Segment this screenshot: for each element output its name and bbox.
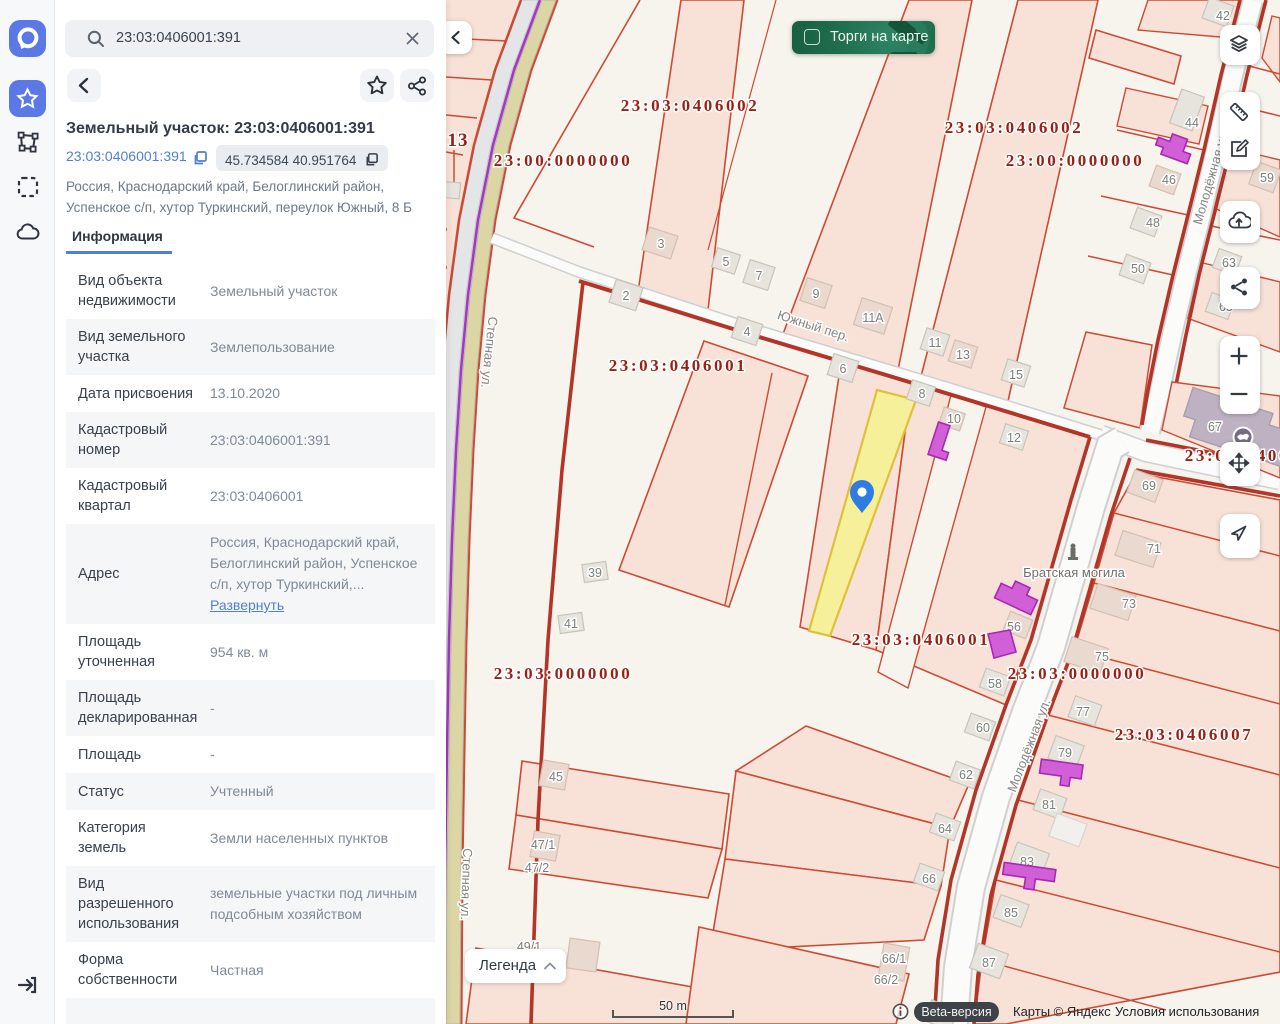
- svg-text:11А: 11А: [862, 311, 884, 325]
- svg-text:Братская могила: Братская могила: [1023, 565, 1126, 580]
- svg-text:60: 60: [976, 721, 990, 735]
- svg-text:44: 44: [1185, 116, 1199, 130]
- svg-text:23:03:0406001: 23:03:0406001: [852, 630, 991, 649]
- svg-text:8: 8: [919, 387, 926, 401]
- svg-text:11: 11: [929, 336, 942, 350]
- svg-text:46: 46: [1162, 173, 1176, 187]
- svg-text:79: 79: [1058, 746, 1072, 760]
- svg-text:62: 62: [959, 768, 973, 782]
- svg-text:66/2: 66/2: [874, 973, 898, 987]
- svg-text:59: 59: [1260, 171, 1274, 185]
- svg-text:81: 81: [1042, 798, 1056, 812]
- svg-text:23:00:0000000: 23:00:0000000: [494, 151, 633, 170]
- svg-text:2: 2: [623, 289, 630, 303]
- svg-text:12: 12: [1007, 431, 1021, 445]
- svg-text:23:00:0000000: 23:00:0000000: [1006, 151, 1145, 170]
- svg-text:47/2: 47/2: [525, 861, 549, 875]
- svg-text:Степная ул.: Степная ул.: [458, 848, 476, 920]
- svg-text:45: 45: [549, 770, 563, 784]
- svg-text:75: 75: [1095, 650, 1109, 664]
- svg-text:10: 10: [947, 412, 961, 426]
- svg-text:58: 58: [988, 677, 1002, 691]
- svg-text:48: 48: [1146, 216, 1160, 230]
- svg-text:47/1: 47/1: [531, 838, 555, 852]
- svg-text:3: 3: [658, 237, 665, 251]
- svg-text:66/1: 66/1: [882, 952, 906, 966]
- svg-text:42: 42: [1216, 9, 1230, 23]
- svg-text:66: 66: [922, 872, 936, 886]
- svg-text:15: 15: [1009, 368, 1023, 382]
- svg-text:64: 64: [938, 822, 952, 836]
- svg-text:9: 9: [813, 287, 820, 301]
- svg-text:23:03:0406001: 23:03:0406001: [609, 356, 748, 375]
- svg-text:4: 4: [744, 325, 751, 339]
- svg-text:69: 69: [1142, 479, 1156, 493]
- svg-text:23:03:0406002: 23:03:0406002: [621, 96, 760, 115]
- svg-text:6: 6: [840, 362, 847, 376]
- svg-text:5: 5: [723, 255, 730, 269]
- svg-text:39: 39: [588, 566, 602, 580]
- svg-text:87: 87: [982, 956, 996, 970]
- svg-text:7: 7: [756, 269, 763, 283]
- svg-text:23:03:0406002: 23:03:0406002: [945, 118, 1084, 137]
- svg-text:85: 85: [1004, 906, 1018, 920]
- svg-text:50: 50: [1131, 262, 1145, 276]
- svg-text:67: 67: [1208, 420, 1222, 434]
- svg-text:23:03:0406007: 23:03:0406007: [1115, 725, 1254, 744]
- svg-text:73: 73: [1122, 597, 1136, 611]
- svg-text:23:03:0000000: 23:03:0000000: [1008, 664, 1147, 683]
- svg-text:71: 71: [1147, 542, 1161, 556]
- svg-text:41: 41: [564, 617, 578, 631]
- svg-text:13: 13: [956, 348, 970, 362]
- svg-text:13: 13: [448, 130, 469, 151]
- svg-text:77: 77: [1076, 705, 1090, 719]
- svg-text:23:03:0000000: 23:03:0000000: [494, 664, 633, 683]
